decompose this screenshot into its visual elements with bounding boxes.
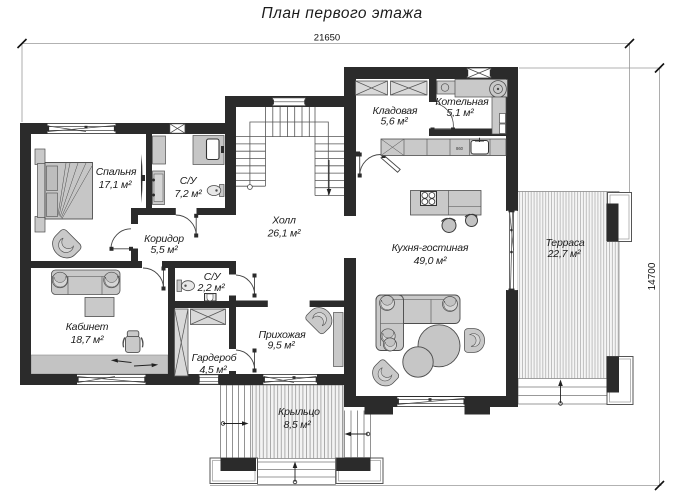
svg-text:Гардероб: Гардероб: [192, 352, 238, 364]
svg-text:18,7 м²: 18,7 м²: [71, 334, 104, 346]
svg-text:Кухня-гостиная: Кухня-гостиная: [392, 242, 469, 254]
svg-text:17,1 м²: 17,1 м²: [99, 179, 132, 191]
svg-text:План первого этажа: План первого этажа: [261, 5, 422, 22]
svg-text:8,5 м²: 8,5 м²: [283, 419, 311, 431]
svg-text:14700: 14700: [647, 262, 658, 290]
svg-text:5,5 м²: 5,5 м²: [150, 244, 178, 256]
svg-text:21650: 21650: [314, 33, 340, 44]
svg-text:Кабинет: Кабинет: [66, 321, 109, 333]
svg-text:860: 860: [456, 146, 464, 151]
svg-text:Холл: Холл: [271, 215, 296, 227]
svg-text:Крыльцо: Крыльцо: [278, 406, 320, 418]
svg-text:4,5 м²: 4,5 м²: [199, 364, 227, 376]
svg-text:5,1 м²: 5,1 м²: [446, 107, 474, 119]
svg-text:Спальня: Спальня: [96, 166, 137, 178]
svg-text:2,2 м²: 2,2 м²: [196, 282, 225, 294]
svg-text:С/У: С/У: [180, 175, 198, 187]
svg-text:49,0 м²: 49,0 м²: [414, 255, 447, 267]
svg-text:22,7 м²: 22,7 м²: [547, 248, 581, 260]
svg-text:9,5 м²: 9,5 м²: [267, 340, 295, 352]
svg-text:26,1 м²: 26,1 м²: [267, 228, 301, 240]
svg-text:5,6 м²: 5,6 м²: [380, 116, 408, 128]
svg-text:7,2 м²: 7,2 м²: [174, 188, 202, 200]
